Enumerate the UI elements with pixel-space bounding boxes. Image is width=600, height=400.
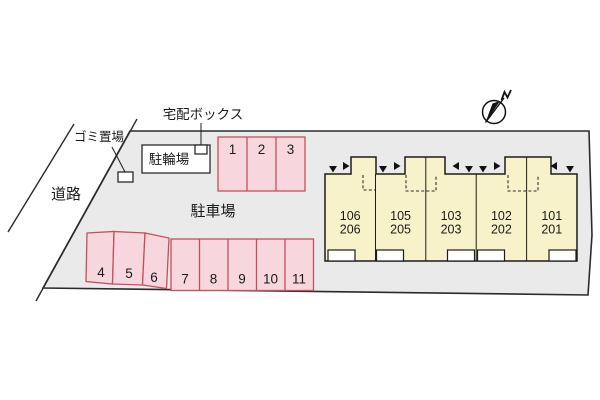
site-plan-canvas: 道路 ゴミ置場 駐輪場 宅配ボックス 駐車場 1 2 3 4 5 6 7 8 9… (0, 0, 600, 400)
garbage-area-label: ゴミ置場 (74, 129, 124, 144)
stall-number: 7 (181, 272, 189, 287)
stall-number: 10 (263, 272, 278, 287)
stall-number: 4 (97, 265, 105, 280)
unit-label: 202 (491, 223, 512, 237)
parking-lot-label: 駐車場 (190, 203, 235, 220)
porch (478, 250, 505, 261)
delivery-box-label: 宅配ボックス (163, 107, 244, 122)
unit-label: 102 (491, 209, 512, 223)
stall-number: 5 (125, 266, 133, 281)
porch (377, 250, 404, 261)
unit-label: 201 (541, 223, 562, 237)
stall-number: 8 (210, 272, 218, 287)
delivery-box (195, 145, 207, 154)
unit-label: 105 (390, 209, 411, 223)
unit-label: 203 (441, 223, 462, 237)
road-label: 道路 (51, 186, 81, 203)
unit-label: 103 (441, 209, 462, 223)
porch (448, 250, 475, 261)
stall-number: 2 (258, 142, 266, 157)
north-arrow-icon (483, 90, 512, 124)
unit-label: 205 (390, 223, 411, 237)
porch (328, 250, 355, 261)
unit-label: 101 (541, 209, 562, 223)
compass-north-mark (502, 90, 512, 100)
unit-label: 206 (340, 223, 361, 237)
garbage-box (118, 172, 133, 182)
stall-number: 9 (238, 272, 246, 287)
bicycle-parking-label: 駐輪場 (149, 151, 190, 167)
stall-number: 1 (229, 142, 237, 157)
unit-label: 106 (340, 209, 361, 223)
road-edge-line (8, 124, 74, 232)
site-plan: 道路 ゴミ置場 駐輪場 宅配ボックス 駐車場 1 2 3 4 5 6 7 8 9… (0, 0, 600, 400)
stall-number: 6 (150, 270, 158, 285)
porch (549, 250, 576, 261)
stall-number: 11 (292, 272, 306, 287)
stall-number: 3 (287, 142, 295, 157)
